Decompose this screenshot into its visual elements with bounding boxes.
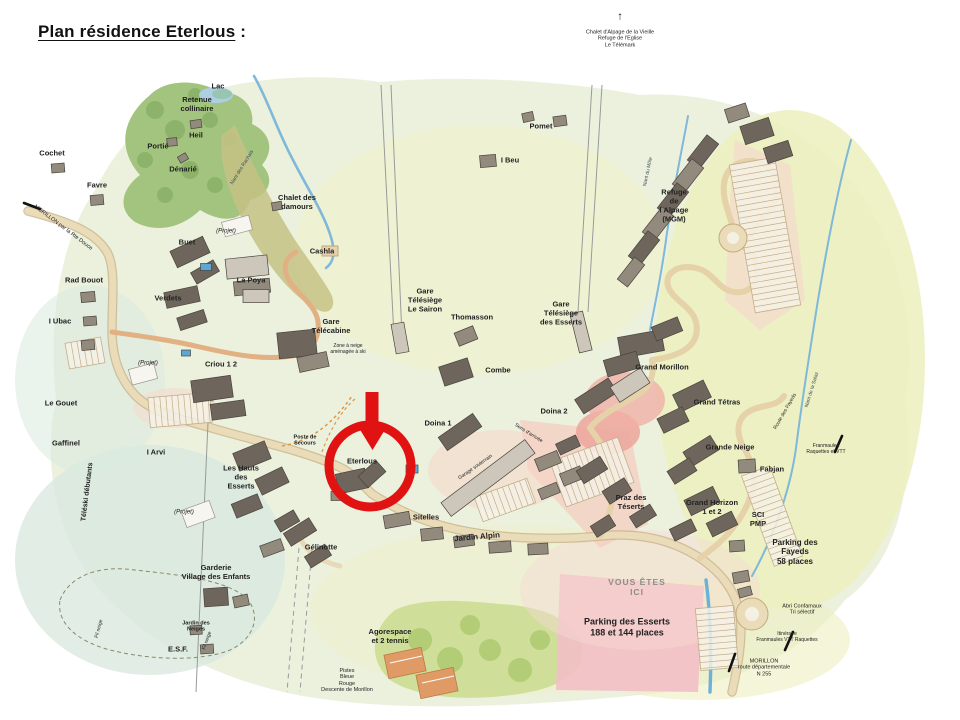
resort-map-illustration <box>0 0 960 720</box>
building <box>190 625 203 635</box>
building <box>528 543 549 555</box>
building <box>81 291 96 302</box>
building <box>200 644 214 654</box>
building <box>190 119 202 128</box>
building <box>90 194 104 205</box>
building <box>201 264 212 271</box>
building <box>81 339 95 350</box>
building <box>738 459 756 473</box>
building <box>553 115 567 127</box>
building <box>182 350 191 356</box>
building <box>167 138 178 147</box>
bridge <box>322 246 338 256</box>
building <box>225 255 269 279</box>
building <box>420 527 443 541</box>
building <box>489 541 512 554</box>
building <box>51 163 65 173</box>
building <box>203 587 228 607</box>
building <box>271 201 282 211</box>
building <box>453 534 474 548</box>
building <box>522 111 535 122</box>
building <box>732 570 750 584</box>
building <box>83 316 97 326</box>
building <box>243 290 269 303</box>
building <box>729 540 745 552</box>
building <box>480 154 497 167</box>
slide: Plan résidence Eterlous : <box>0 0 960 720</box>
